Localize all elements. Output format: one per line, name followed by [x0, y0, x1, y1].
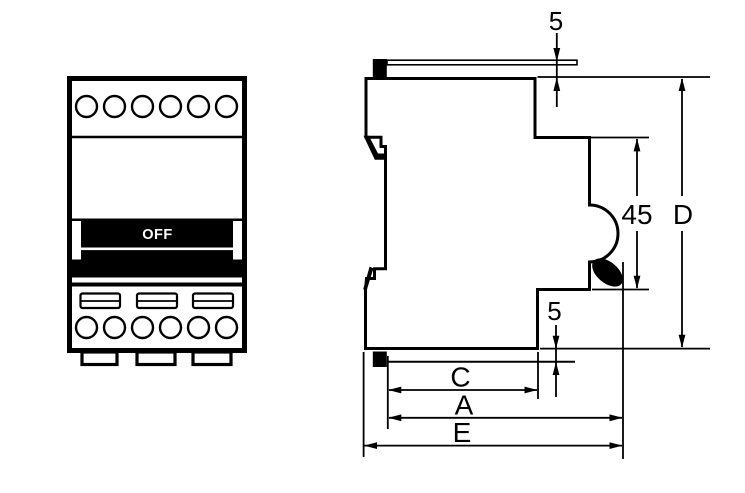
- top-thin-strip: [387, 60, 577, 65]
- dim-label-depth-e: E: [453, 417, 472, 448]
- mounting-foot: [193, 352, 231, 365]
- terminal-screw-circle: [76, 317, 97, 338]
- dim-top-offset: [553, 33, 560, 107]
- terminal-screw-circle: [132, 317, 153, 338]
- terminal-screw-circle: [216, 96, 237, 117]
- dim-depth-a: [388, 414, 622, 421]
- terminal-screw-circle: [76, 96, 97, 117]
- mounting-foot: [82, 352, 117, 365]
- arrowhead-up: [679, 78, 686, 91]
- front-case-outline: [70, 79, 245, 351]
- dim-label-depth-a: A: [455, 390, 474, 421]
- terminal-screw-circle: [188, 317, 209, 338]
- dim-label-handle-height: 45: [621, 199, 652, 230]
- dim-depth-e: [364, 442, 623, 449]
- breaker-side-view: [363, 59, 628, 367]
- dim-label-top-offset: 5: [549, 6, 563, 36]
- arrowhead-down: [634, 276, 641, 289]
- dim-label-depth-c: C: [450, 362, 470, 393]
- arrowhead-up: [553, 362, 560, 375]
- toggle-handle-gap: [81, 248, 233, 251]
- case-groove-line: [72, 283, 242, 287]
- toggle-recess-notch-left: [72, 221, 81, 260]
- arrowhead-left: [388, 414, 401, 421]
- arrowhead-down: [553, 336, 560, 349]
- arrowhead-up: [553, 78, 560, 92]
- bottom-feet: [82, 352, 231, 365]
- arrowhead-right: [525, 387, 538, 394]
- arrowhead-left: [364, 442, 377, 449]
- mounting-foot: [137, 352, 175, 365]
- top-clamp-block: [373, 59, 387, 77]
- switch-off-label: OFF: [142, 227, 173, 243]
- terminal-screw-circle: [160, 96, 181, 117]
- bottom-clamp-block: [373, 352, 387, 368]
- terminal-screw-circle: [104, 317, 125, 338]
- terminal-screw-circle: [160, 317, 181, 338]
- arrowhead-left: [388, 387, 401, 394]
- dim-label-total-height: D: [673, 199, 693, 230]
- terminal-screw-circle: [132, 96, 153, 117]
- technical-drawing-canvas: OFF: [0, 0, 745, 493]
- side-profile-outline: [366, 79, 619, 349]
- arrowhead-up: [634, 138, 641, 151]
- arrowhead-right: [610, 442, 623, 449]
- dim-label-bottom-offset: 5: [547, 296, 561, 326]
- arrowhead-right: [610, 414, 623, 421]
- terminal-screw-circle: [216, 317, 237, 338]
- terminal-screw-circle: [188, 96, 209, 117]
- toggle-recess-notch-right: [233, 221, 242, 260]
- breaker-front-view: OFF: [70, 79, 245, 365]
- arrowhead-down: [679, 335, 686, 348]
- terminal-screw-circle: [104, 96, 125, 117]
